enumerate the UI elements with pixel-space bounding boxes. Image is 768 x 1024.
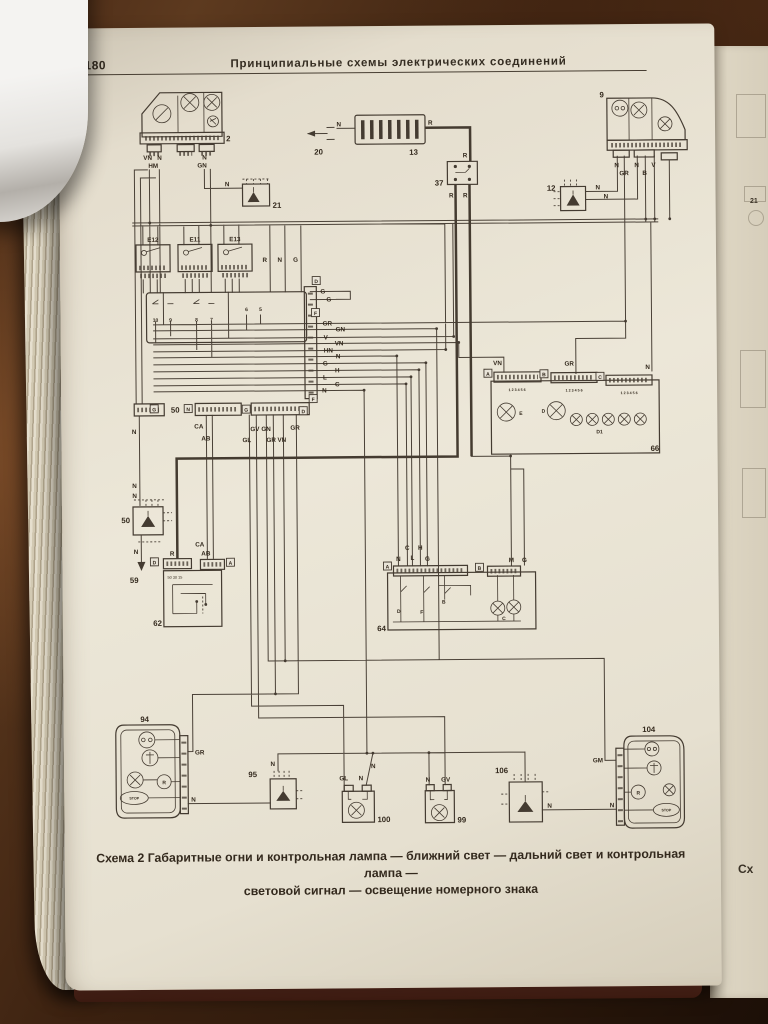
- stop-lamp-label: STOP: [662, 808, 672, 812]
- wire-label: AB: [201, 435, 211, 442]
- wire-label: VN: [143, 155, 152, 162]
- contact-number: 8: [195, 318, 198, 324]
- photo-of-book-page: { "page": { "number": "180", "title": "П…: [0, 0, 768, 1024]
- wire-label: N: [426, 777, 431, 784]
- wire-label: R: [463, 192, 468, 199]
- wire-label: N: [547, 803, 552, 810]
- ignition-switch-62: D A 50 30 15 R CA AB 62: [150, 541, 235, 628]
- wire-label: N: [132, 429, 137, 436]
- reverse-lamp-label: R: [162, 780, 166, 786]
- component-number: 66: [651, 444, 660, 453]
- adjacent-diagram-fragment: [740, 350, 766, 408]
- ground-number: 59: [130, 576, 139, 585]
- fuse-box-13: 13 N R: [336, 115, 433, 158]
- wire-label: G: [320, 289, 325, 296]
- wire-label: H: [335, 367, 340, 374]
- ground-point-21: N 21: [225, 181, 282, 210]
- relay-label: E13: [229, 236, 241, 243]
- connector-letter: A: [486, 372, 490, 378]
- wire-label: H: [418, 545, 423, 552]
- wire-label: R: [428, 120, 433, 127]
- component-number: 50: [171, 406, 180, 415]
- wire-label: R: [449, 192, 454, 199]
- wire-label: N: [157, 155, 162, 162]
- wire-label: GL: [242, 437, 251, 444]
- component-number: 62: [153, 619, 162, 628]
- connector-letter: D: [301, 409, 305, 415]
- contact-number: 5: [259, 307, 262, 313]
- wire-label: N: [396, 556, 401, 563]
- wire-label: G: [522, 557, 527, 564]
- component-number: 13: [409, 148, 418, 157]
- wire-label: N: [359, 775, 364, 782]
- inner-label: F: [420, 610, 423, 616]
- component-number: 100: [377, 815, 391, 824]
- adjacent-lamp-icon: [748, 210, 764, 226]
- wire-label: GR: [290, 425, 300, 432]
- wire-label: G: [326, 296, 331, 303]
- wire-label: GV: [441, 777, 451, 784]
- connector-letter: N: [186, 407, 190, 413]
- component-number: 37: [435, 179, 444, 188]
- diode-label: D1: [596, 429, 603, 435]
- wire-label: R: [463, 152, 468, 159]
- wire-label: N: [614, 162, 619, 169]
- wire-label: GR: [619, 170, 629, 177]
- wire-label: N: [202, 154, 207, 161]
- wire-label: GN: [197, 162, 207, 169]
- contact-number: 6: [245, 307, 248, 313]
- wire-label: HM: [148, 163, 158, 170]
- lamp-label: D: [542, 409, 546, 415]
- wire-label: G: [323, 360, 328, 367]
- component-number: 2: [226, 134, 231, 143]
- component-number: 99: [457, 815, 466, 824]
- wire-label: N: [595, 184, 600, 191]
- caption-line-1: Схема 2 Габаритные огни и контрольная ла…: [85, 846, 697, 885]
- wire-label: V: [324, 334, 329, 341]
- plate-lamp-99: N GV 99: [425, 776, 467, 824]
- wire-label: VN: [493, 360, 502, 367]
- pin-numbers: 1 2 3 4 5 6: [509, 388, 526, 392]
- wire-label: GR: [266, 437, 276, 444]
- switch-unit-64: A B C H N L G M G D F B C 64: [377, 544, 536, 633]
- plate-lamp-100: GL N N 100: [339, 763, 391, 824]
- wire-label: VN: [277, 437, 286, 444]
- wire-label: GL: [339, 775, 348, 782]
- wire-label: N: [322, 387, 327, 394]
- inner-label: C: [502, 616, 506, 622]
- component-number: 21: [273, 201, 282, 210]
- lamp-label: E: [519, 411, 523, 417]
- contact-number: 9: [169, 318, 172, 324]
- wire-label: GR: [564, 361, 574, 368]
- wire-label: N: [336, 121, 341, 128]
- reverse-lamp-label: R: [636, 791, 640, 797]
- connector-letter: B: [478, 566, 482, 572]
- adjacent-diagram-fragment: [736, 94, 766, 138]
- component-number: 20: [314, 148, 323, 157]
- component-number: 94: [140, 715, 149, 724]
- wire-label: N: [270, 761, 275, 768]
- ground-point-95: 95 N: [248, 761, 296, 809]
- component-number: 95: [248, 770, 257, 779]
- wires: [131, 125, 676, 813]
- wire-label: R: [170, 551, 175, 558]
- relay-e11: E11: [178, 236, 212, 275]
- contact-number: 10: [153, 318, 159, 324]
- component-number: 106: [495, 766, 509, 775]
- wire-label: GR: [195, 749, 205, 756]
- adjacent-component-number: 21: [750, 198, 758, 205]
- inner-label: B: [442, 600, 446, 606]
- adjacent-caption-fragment: Сх: [738, 862, 753, 876]
- book-page: 180 Принципиальные схемы электрических с…: [58, 23, 722, 990]
- contact-number: 7: [210, 317, 213, 323]
- wire-label: N: [277, 257, 282, 264]
- wire-label: GR: [323, 320, 333, 327]
- ground-point-106: 106 N: [495, 766, 552, 822]
- wire-label: N: [225, 181, 230, 188]
- pin-numbers: 1 2 3 4 5 6: [566, 388, 583, 392]
- wire-label: R: [262, 257, 267, 264]
- component-number: 12: [547, 184, 556, 193]
- connector-letter: B: [542, 372, 546, 378]
- rear-lamp-left-94: R STOP 94 GR N: [116, 714, 206, 818]
- rear-lamp-right-104: R STOP 104 GM N: [593, 725, 685, 829]
- wire-label: AB: [201, 550, 211, 557]
- wire-label: GV: [250, 426, 260, 433]
- component-number: 9: [599, 90, 604, 99]
- instrument-panel-66: A B C 1 2 3 4 5 6 1 2 3 4 5 6 1 2 3 4 5 …: [484, 359, 660, 454]
- wire-label: N: [336, 353, 341, 360]
- pin-numbers: 1 2 3 4 5 6: [621, 391, 638, 395]
- connector-20: 20: [307, 131, 324, 157]
- wire-label: N: [132, 493, 137, 500]
- wire-label: N: [634, 162, 639, 169]
- wire-label: VN: [335, 340, 344, 347]
- wire-label: GN: [261, 426, 271, 433]
- terminal-numbers: 50 30 15: [168, 576, 183, 580]
- connector-letter: A: [229, 561, 233, 567]
- relay-label: E11: [189, 236, 200, 243]
- figure-caption: Схема 2 Габаритные огни и контрольная ла…: [85, 846, 697, 902]
- connector-letter: F: [312, 397, 315, 403]
- headlamp-left-2: 2 VN N N HM GN: [140, 92, 232, 170]
- relay-e13: E13: [218, 236, 252, 275]
- connector-letter: D: [314, 279, 318, 285]
- inner-label: D: [397, 609, 401, 615]
- wire-label: N: [604, 193, 609, 200]
- connector-letter: D: [153, 560, 157, 566]
- wire-label: N: [371, 763, 376, 770]
- ground-point-50: 50 N N N 59: [121, 483, 163, 585]
- wire-label: C: [335, 381, 340, 388]
- wire-label: N: [132, 483, 137, 490]
- wire-label: CA: [195, 541, 205, 548]
- wire-label: G: [293, 257, 298, 264]
- connector-letter: G: [152, 407, 156, 413]
- wire-label: L: [410, 555, 414, 562]
- wire-label: B: [642, 170, 647, 177]
- wire-label: C: [405, 545, 410, 552]
- wire-label: N: [610, 802, 615, 809]
- component-number: 64: [377, 624, 386, 633]
- wire-label: N: [191, 797, 196, 804]
- component-number: 50: [121, 516, 130, 525]
- connector-letter: C: [598, 375, 602, 381]
- headlamp-right-9: 9 N GR N B V: [599, 90, 687, 178]
- wire-label: N: [645, 364, 650, 371]
- wire-label: L: [323, 374, 327, 381]
- connector-letter: A: [386, 565, 390, 571]
- adjacent-diagram-fragment: [742, 468, 766, 518]
- wire-label: GN: [336, 326, 346, 333]
- ground-point-12: 12 N N: [547, 183, 609, 210]
- connector-letter: F: [314, 311, 317, 317]
- component-number: 104: [642, 725, 656, 734]
- wire-label: V: [651, 162, 656, 169]
- wire-label: HN: [324, 347, 334, 354]
- wire-label: G: [425, 556, 430, 563]
- stop-lamp-label: STOP: [129, 796, 139, 800]
- wire-label: N: [134, 549, 139, 556]
- connector-letter: G: [244, 408, 248, 414]
- wire-label: M: [509, 557, 514, 564]
- relay-label: E12: [147, 237, 159, 244]
- wire-label: CA: [194, 423, 204, 430]
- wire-label: GM: [593, 757, 603, 764]
